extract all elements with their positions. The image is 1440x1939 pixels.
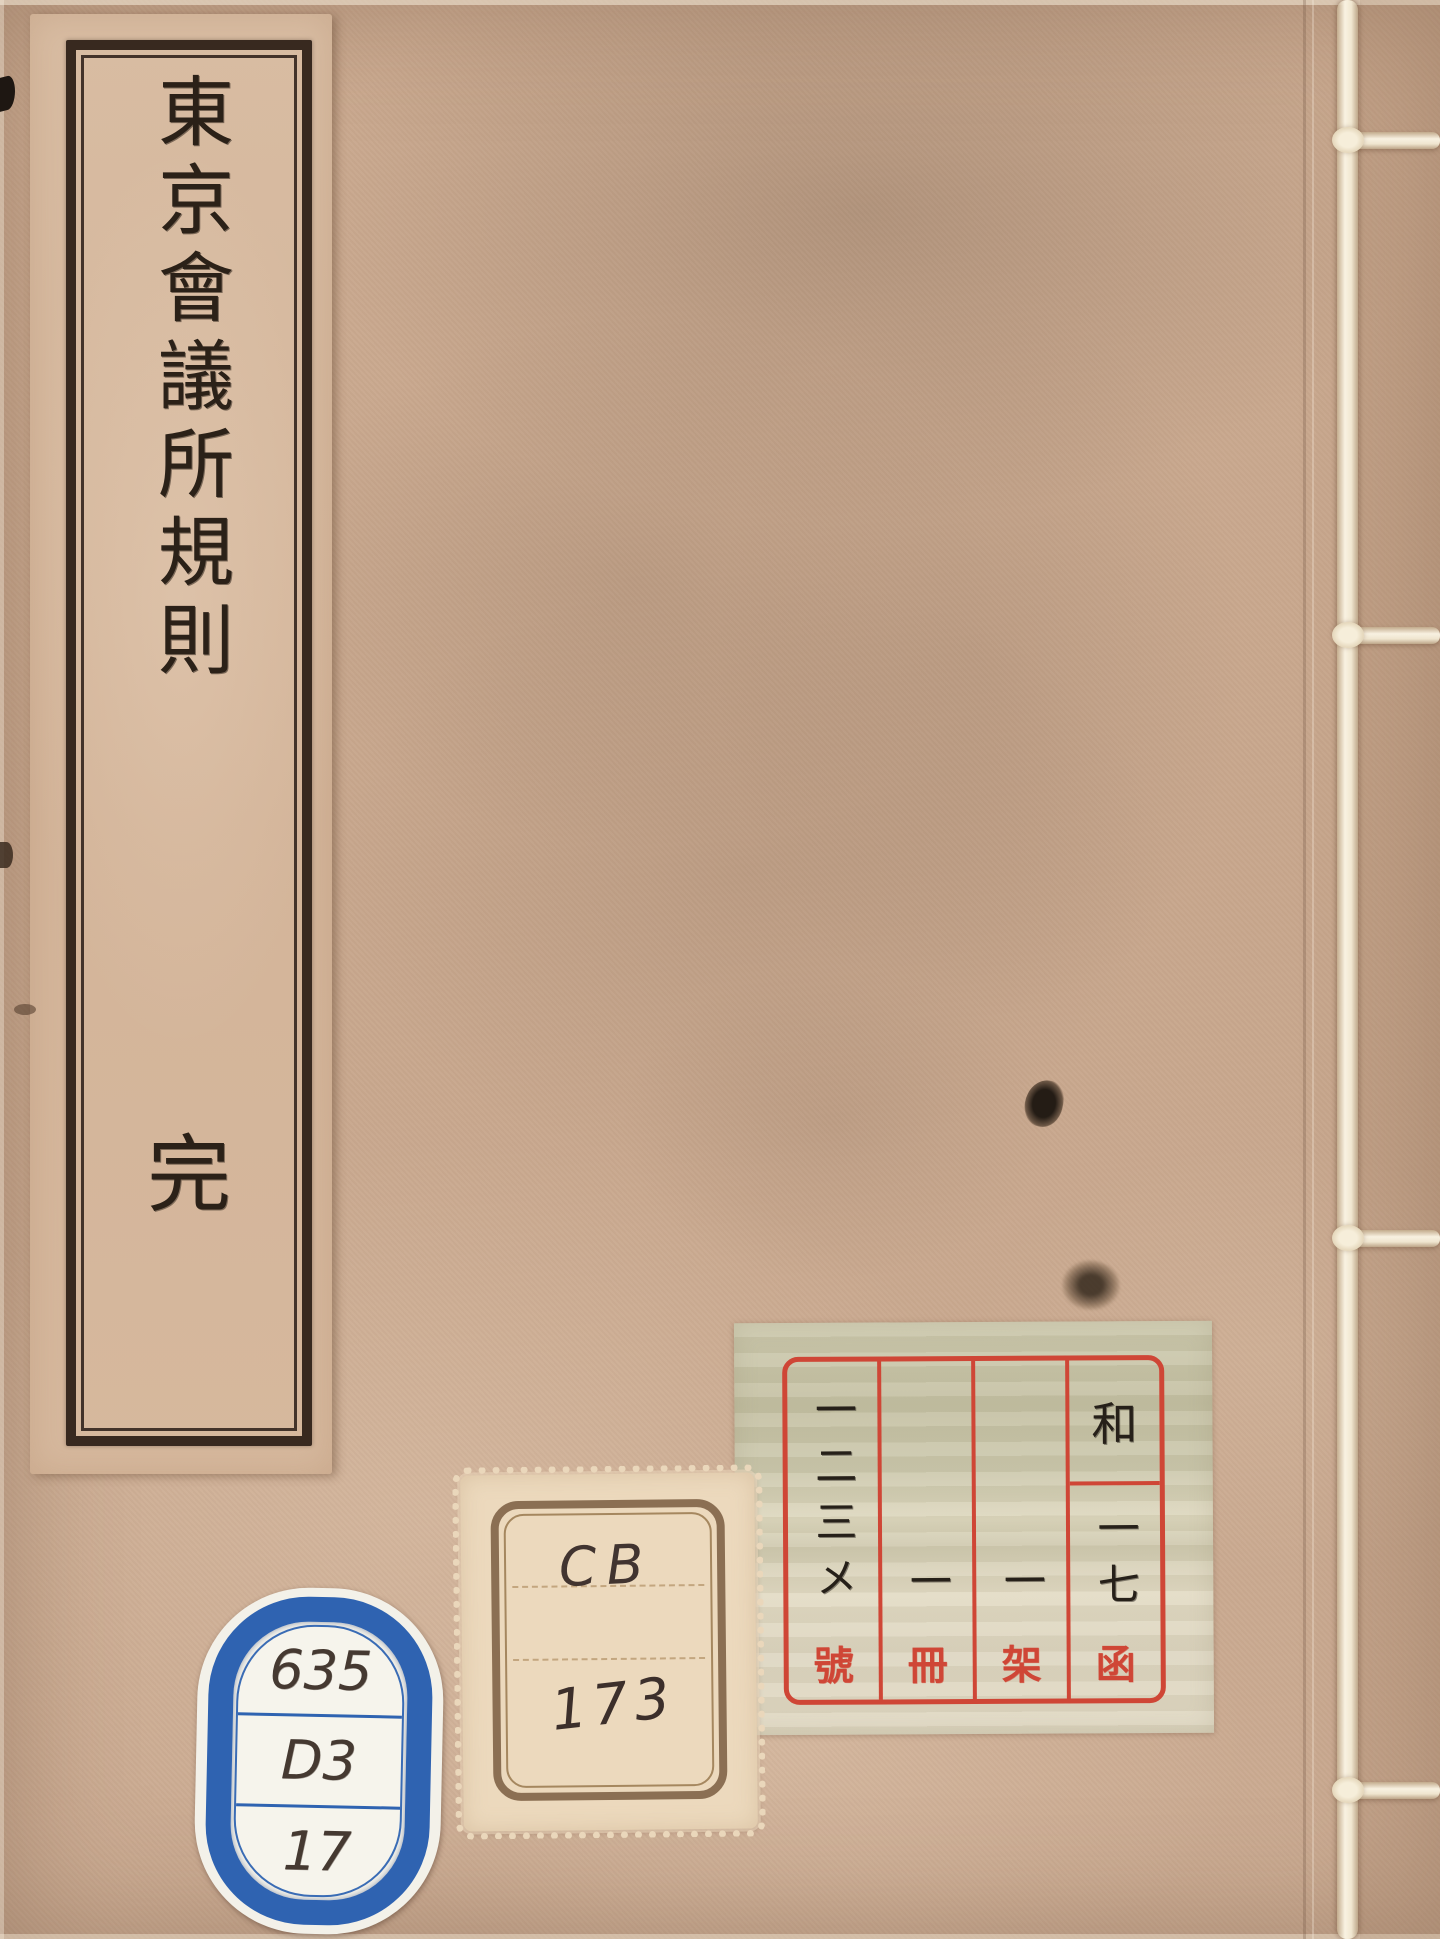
ink-spot-small [1062,1260,1120,1310]
accession-unit-satsu: 冊 [908,1633,948,1691]
title-slip: 東京會議所規則 完 [30,14,332,1474]
cover-crease-highlight [1312,0,1314,1939]
call-number-row-2: D3 [236,1713,402,1807]
cb-stamp-divider-2 [513,1657,705,1661]
accession-number-value: 一二三メ [811,1388,854,1612]
title-slip-outer-frame: 東京會議所規則 完 [66,40,312,1446]
binding-knot-3 [1332,1225,1364,1251]
accession-col-case: 和 一七 函 [1069,1360,1161,1698]
accession-shelf-value: 一 [1000,1559,1042,1615]
accession-col-volume: 一 冊 [881,1361,977,1699]
scan-edge-bottom [0,1934,1440,1939]
accession-label: 一二三メ 號 一 冊 一 架 和 一七 函 [734,1321,1214,1735]
left-edge-small-mark [0,842,13,868]
accession-case-series: 和 [1069,1360,1160,1485]
cb-stamp-code: CB [557,1532,655,1599]
call-number-rows: 635 D3 17 [232,1623,406,1898]
accession-unit-go: 號 [814,1634,854,1692]
accession-col-number: 一二三メ 號 [787,1361,883,1699]
binding-knot-1 [1332,127,1364,153]
cover-crease-line [1303,0,1306,1939]
cb-stamp-label: CB 173 [460,1472,758,1831]
title-slip-inner-frame: 東京會議所規則 完 [81,55,297,1431]
cb-stamp-inner-frame: CB 173 [504,1512,715,1788]
accession-volume-value: 一 [906,1559,948,1615]
scan-edge-top [0,0,1440,5]
left-edge-faint-mark [14,1004,36,1015]
accession-red-frame: 一二三メ 號 一 冊 一 架 和 一七 函 [782,1355,1166,1705]
binding-spine-strip [1360,0,1440,1939]
accession-unit-ka: 架 [1002,1633,1042,1691]
scan-edge-left [0,0,4,1939]
end-mark-kan: 完 [147,1108,231,1229]
ink-spot-large [1021,1077,1067,1130]
binding-knot-4 [1332,1777,1364,1803]
call-number-label: 635 D3 17 [192,1585,445,1936]
accession-unit-hako: 函 [1096,1632,1136,1690]
binding-thread-vertical [1337,0,1358,1939]
left-edge-ink-mark [0,74,15,112]
book-title-vertical-text: 東京會議所規則 [151,72,227,688]
book-cover-scan: 東京會議所規則 完 一二三メ 號 一 冊 一 架 和 一七 函 [0,0,1440,1939]
binding-knot-2 [1332,622,1364,648]
cb-stamp-number: 173 [548,1665,680,1744]
accession-col-shelf: 一 架 [975,1360,1071,1698]
cb-stamp-outer-frame: CB 173 [490,1499,727,1801]
accession-case-value: 一七 [1094,1506,1137,1618]
